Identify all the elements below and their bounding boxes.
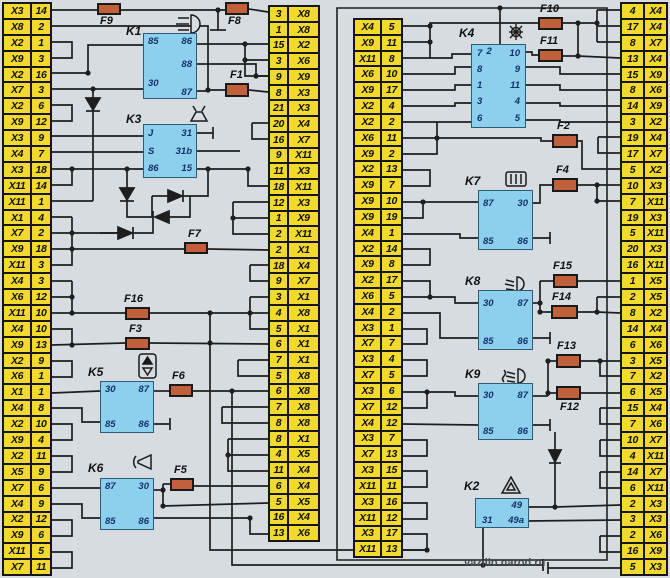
strip-cell: X7: [4, 560, 32, 574]
relay-k9: 30 87 85 86: [478, 383, 533, 440]
strip-cell: 19: [382, 210, 401, 224]
strip-row: X314: [4, 4, 50, 20]
fuse-label: F1: [230, 69, 243, 81]
strip-row: X41: [355, 226, 401, 242]
strip-cell: 5: [622, 226, 645, 240]
relay-fuse-wiring-diagram: X314X82X21X93X216X73X26X912X39X47X318X11…: [0, 0, 670, 578]
strip-row: 16X9: [622, 544, 666, 560]
strip-cell: 3: [32, 52, 50, 66]
strip-cell: X11: [355, 542, 382, 556]
strip-cell: 3: [622, 115, 645, 129]
strip-cell: 16: [32, 68, 50, 82]
strip-cell: 17: [622, 20, 645, 34]
strip-cell: 13: [382, 447, 401, 461]
relay-k6: 87 30 85 86: [100, 478, 154, 530]
strip-row: 13X6: [270, 526, 318, 540]
strip-cell: X9: [355, 36, 382, 50]
strip-cell: X4: [4, 322, 32, 336]
strip-cell: 10: [622, 433, 645, 447]
strip-cell: X9: [355, 147, 382, 161]
strip-row: 11X4: [270, 463, 318, 479]
strip-cell: 2: [32, 20, 50, 34]
strip-cell: X4: [645, 131, 666, 145]
strip-cell: X7: [645, 465, 666, 479]
strip-row: X43: [4, 274, 50, 290]
strip-cell: 3: [270, 54, 289, 68]
strip-cell: 10: [32, 322, 50, 336]
strip-cell: 5: [270, 495, 289, 509]
strip-row: 16X11: [622, 258, 666, 274]
strip-cell: 9: [32, 497, 50, 511]
strip-cell: X3: [355, 321, 382, 335]
strip-cell: 4: [270, 448, 289, 462]
relay-pin: 31: [482, 516, 493, 526]
strip-row: 2X1: [270, 243, 318, 259]
fuse-f15: [553, 274, 578, 288]
strip-cell: X3: [355, 384, 382, 398]
strip-cell: 12: [32, 290, 50, 304]
strip-row: 17X7: [622, 147, 666, 163]
strip-cell: X4: [645, 322, 666, 336]
strip-row: 3X3: [622, 513, 666, 529]
strip-row: X49: [4, 497, 50, 513]
strip-row: 20X3: [622, 242, 666, 258]
strip-row: 13X4: [622, 52, 666, 68]
relay-pin: 8: [477, 65, 482, 75]
strip-row: 15X9: [622, 68, 666, 84]
strip-row: 20X4: [270, 117, 318, 133]
strip-cell: 5: [382, 368, 401, 382]
strip-cell: X11: [4, 179, 32, 193]
strip-cell: 7: [622, 369, 645, 383]
strip-cell: X3: [645, 242, 666, 256]
strip-row: 19X4: [622, 131, 666, 147]
strip-row: 14X7: [622, 465, 666, 481]
fuse-f10: [538, 17, 563, 30]
strip-row: 5X3: [622, 560, 666, 574]
strip-row: X26: [4, 99, 50, 115]
strip-row: 2X5: [622, 290, 666, 306]
relay-pin: 86: [517, 337, 528, 347]
strip-cell: X1: [4, 385, 32, 399]
strip-cell: 8: [622, 83, 645, 97]
fuse-label: F3: [129, 323, 142, 335]
strip-cell: X9: [355, 83, 382, 97]
relay-pin: 87: [181, 88, 192, 98]
strip-cell: 1: [32, 195, 50, 209]
strip-cell: 4: [270, 306, 289, 320]
strip-row: 10X7: [622, 433, 666, 449]
strip-cell: 2: [382, 115, 401, 129]
strip-row: 6X6: [622, 338, 666, 354]
strip-cell: X9: [4, 433, 32, 447]
strip-cell: 2: [622, 290, 645, 304]
relay-pin: 30: [138, 482, 149, 492]
strip-cell: X4: [355, 416, 382, 430]
relay-pin: 87: [138, 385, 149, 395]
strip-row: X913: [4, 338, 50, 354]
strip-row: X22: [355, 115, 401, 131]
relay-pin: 1: [477, 81, 482, 91]
strip-cell: 6: [270, 479, 289, 493]
strip-cell: X4: [4, 497, 32, 511]
strip-cell: 11: [382, 131, 401, 145]
relay-pin: 87: [483, 199, 494, 209]
strip-row: X213: [355, 162, 401, 178]
strip-row: 5X8: [270, 369, 318, 385]
strip-row: 3X6: [270, 54, 318, 70]
strip-cell: X11: [645, 226, 666, 240]
strip-cell: X9: [4, 528, 32, 542]
strip-row: X216: [4, 68, 50, 84]
fuse-f13: [556, 354, 581, 368]
strip-row: 7X11: [622, 195, 666, 211]
strip-row: 12X3: [270, 196, 318, 212]
strip-cell: X4: [645, 4, 666, 18]
strip-row: X97: [355, 178, 401, 194]
fuse-f3: [125, 337, 150, 350]
strip-row: X118: [355, 52, 401, 68]
strip-cell: X3: [289, 164, 318, 178]
relay-label-k7: K7: [465, 174, 480, 188]
strip-cell: X11: [355, 52, 382, 66]
strip-cell: 17: [382, 527, 401, 541]
strip-cell: X9: [355, 210, 382, 224]
strip-cell: 2: [622, 497, 645, 511]
relay-k1: 85 86 88 30 87: [143, 33, 197, 99]
strip-cell: X4: [355, 20, 382, 34]
strip-row: 1X5: [622, 274, 666, 290]
strip-cell: 18: [32, 242, 50, 256]
strip-cell: 10: [32, 306, 50, 320]
fuse-label: F16: [124, 293, 143, 305]
strip-row: 4X4: [622, 4, 666, 20]
relay-pin: 86: [181, 37, 192, 47]
strip-cell: X11: [645, 195, 666, 209]
window-lift-icon: [139, 354, 156, 378]
strip-row: X911: [355, 36, 401, 52]
strip-cell: X9: [355, 178, 382, 192]
relay-pin: 85: [483, 427, 494, 437]
hazard-triangle-icon: [502, 477, 520, 493]
strip-row: X21: [4, 36, 50, 52]
strip-row: 4X8: [270, 306, 318, 322]
strip-cell: 14: [622, 465, 645, 479]
strip-cell: X3: [645, 497, 666, 511]
strip-cell: X9: [4, 338, 32, 352]
relay-pin: 49: [511, 501, 522, 511]
strip-row: X1114: [4, 179, 50, 195]
strip-cell: 14: [622, 99, 645, 113]
strip-cell: X9: [355, 194, 382, 208]
strip-cell: 12: [382, 400, 401, 414]
strip-row: X14: [4, 211, 50, 227]
strip-cell: 8: [32, 401, 50, 415]
strip-cell: X4: [355, 226, 382, 240]
strip-cell: 2: [382, 305, 401, 319]
relay-pin: 31: [170, 128, 192, 139]
relay-pin: 30: [105, 385, 116, 395]
strip-row: 14X4: [622, 322, 666, 338]
strip-row: 2X3: [622, 497, 666, 513]
strip-cell: 13: [382, 542, 401, 556]
strip-cell: X3: [289, 86, 318, 100]
strip-row: 9X7: [270, 274, 318, 290]
strip-row: X65: [355, 289, 401, 305]
strip-row: X82: [4, 20, 50, 36]
strip-cell: 3: [622, 513, 645, 527]
connector-strip-right: 4X417X48X713X415X98X614X93X219X417X75X21…: [620, 2, 668, 576]
strip-cell: X2: [355, 99, 382, 113]
relay-pin: 86: [148, 163, 170, 174]
strip-cell: 15: [622, 401, 645, 415]
relay-pin: 49a: [508, 516, 524, 526]
strip-row: 6X1: [270, 337, 318, 353]
relay-pin: 85: [105, 517, 116, 527]
strip-row: X918: [4, 242, 50, 258]
strip-cell: 3: [270, 290, 289, 304]
strip-row: 10X3: [622, 179, 666, 195]
strip-cell: X1: [289, 290, 318, 304]
strip-cell: 16: [270, 511, 289, 525]
strip-row: X47: [4, 147, 50, 163]
strip-cell: X1: [289, 432, 318, 446]
strip-cell: X11: [645, 449, 666, 463]
strip-row: X1112: [355, 511, 401, 527]
strip-row: 8X8: [270, 416, 318, 432]
strip-cell: X9: [355, 257, 382, 271]
fog-light-icon: [503, 369, 526, 383]
strip-cell: X11: [289, 227, 318, 241]
strip-row: 6X5: [622, 385, 666, 401]
strip-cell: 7: [622, 417, 645, 431]
strip-row: X76: [4, 481, 50, 497]
relay-label-k5: K5: [88, 365, 103, 379]
strip-cell: X4: [289, 463, 318, 477]
relay-pin: 9: [509, 65, 520, 75]
strip-row: X36: [355, 384, 401, 400]
strip-cell: 8: [622, 306, 645, 320]
fuse-f16: [125, 307, 150, 320]
strip-row: X1111: [355, 479, 401, 495]
strip-cell: X2: [645, 163, 666, 177]
strip-cell: 5: [382, 20, 401, 34]
diode-icon: [118, 227, 132, 239]
strip-cell: X4: [645, 52, 666, 66]
rear-defogger-icon: [506, 172, 526, 186]
strip-cell: X1: [4, 211, 32, 225]
strip-cell: X1: [289, 353, 318, 367]
strip-cell: X7: [4, 226, 32, 240]
strip-cell: X2: [645, 369, 666, 383]
horn-icon: [134, 455, 151, 469]
strip-row: 7X8: [270, 400, 318, 416]
strip-row: X73: [4, 83, 50, 99]
strip-row: 7X6: [622, 417, 666, 433]
relay-label-k3: K3: [126, 112, 141, 126]
strip-row: X37: [355, 432, 401, 448]
relay-k5: 30 87 85 86: [100, 381, 154, 433]
strip-cell: X7: [289, 274, 318, 288]
strip-cell: 2: [270, 227, 289, 241]
strip-cell: 10: [382, 67, 401, 81]
strip-cell: 1: [622, 274, 645, 288]
strip-cell: 6: [270, 337, 289, 351]
strip-cell: X3: [355, 352, 382, 366]
diode-icon: [86, 98, 100, 110]
strip-cell: 6: [32, 99, 50, 113]
strip-cell: X9: [289, 212, 318, 226]
strip-cell: 14: [32, 179, 50, 193]
strip-cell: 4: [382, 352, 401, 366]
high-beam-icon: [176, 15, 200, 33]
strip-cell: X11: [645, 481, 666, 495]
strip-cell: X2: [4, 417, 32, 431]
strip-cell: X7: [355, 337, 382, 351]
relay-pin: 10: [509, 49, 520, 59]
relay-pin: 88: [181, 60, 192, 70]
strip-row: X212: [4, 513, 50, 529]
strip-cell: 6: [32, 481, 50, 495]
relay-pin: 85: [105, 420, 116, 430]
strip-row: X315: [355, 463, 401, 479]
strip-row: 21X3: [270, 101, 318, 117]
strip-row: X412: [355, 416, 401, 432]
relay-pin: 86: [517, 237, 528, 247]
strip-cell: X1: [289, 322, 318, 336]
strip-cell: 20: [622, 242, 645, 256]
strip-cell: X2: [4, 36, 32, 50]
strip-row: 18X4: [270, 259, 318, 275]
strip-cell: X3: [645, 211, 666, 225]
strip-cell: X6: [4, 369, 32, 383]
strip-cell: X2: [4, 99, 32, 113]
strip-cell: X3: [4, 163, 32, 177]
strip-cell: X8: [4, 20, 32, 34]
relay-pin: J: [148, 128, 170, 139]
fuse-label: F7: [188, 228, 201, 240]
strip-row: X318: [4, 163, 50, 179]
strip-row: X29: [4, 354, 50, 370]
strip-cell: X2: [355, 242, 382, 256]
strip-cell: X3: [355, 527, 382, 541]
strip-cell: 12: [32, 115, 50, 129]
watermark: vazillo.narod.ru: [464, 557, 545, 569]
strip-cell: 11: [382, 479, 401, 493]
strip-cell: X9: [4, 52, 32, 66]
strip-cell: X4: [645, 401, 666, 415]
strip-cell: X6: [645, 338, 666, 352]
strip-cell: 1: [32, 36, 50, 50]
strip-row: X39: [4, 131, 50, 147]
fuse-label: F8: [228, 15, 241, 27]
fuse-label: F4: [556, 164, 569, 176]
strip-cell: X4: [355, 305, 382, 319]
fuse-f4: [552, 178, 578, 192]
strip-cell: 11: [270, 463, 289, 477]
strip-cell: 4: [622, 4, 645, 18]
strip-row: 3X1: [270, 290, 318, 306]
strip-cell: 4: [32, 211, 50, 225]
low-beam-icon: [505, 277, 524, 291]
strip-row: X61: [4, 369, 50, 385]
strip-cell: X5: [289, 495, 318, 509]
strip-row: 16X4: [270, 511, 318, 527]
strip-cell: 15: [382, 463, 401, 477]
strip-row: X42: [355, 305, 401, 321]
relay-pin: 30: [148, 79, 159, 89]
relay-pin: 4: [509, 97, 520, 107]
strip-row: X217: [355, 273, 401, 289]
strip-cell: 2: [32, 226, 50, 240]
connector-strip-left: X314X82X21X93X216X73X26X912X39X47X318X11…: [2, 2, 52, 576]
strip-cell: 11: [32, 560, 50, 574]
washer-icon: [191, 106, 207, 121]
strip-row: X1110: [4, 306, 50, 322]
strip-row: 3X8: [270, 7, 318, 23]
strip-row: 8X1: [270, 432, 318, 448]
strip-cell: X5: [289, 448, 318, 462]
fuse-label: F2: [557, 120, 570, 132]
strip-row: X75: [355, 368, 401, 384]
strip-cell: X8: [289, 369, 318, 383]
strip-row: 6X8: [270, 385, 318, 401]
strip-cell: X2: [4, 354, 32, 368]
strip-cell: 3: [622, 354, 645, 368]
strip-row: 8X7: [622, 36, 666, 52]
strip-cell: 13: [622, 52, 645, 66]
strip-cell: 5: [270, 322, 289, 336]
strip-row: 3X5: [622, 354, 666, 370]
strip-cell: 1: [32, 369, 50, 383]
fuse-label: F9: [100, 15, 113, 27]
strip-cell: X5: [645, 274, 666, 288]
strip-cell: 8: [270, 432, 289, 446]
fuse-label: F15: [553, 260, 572, 272]
strip-row: X919: [355, 210, 401, 226]
fuse-f8: [225, 2, 249, 15]
strip-row: X912: [4, 115, 50, 131]
strip-cell: 8: [382, 257, 401, 271]
bulb-icon: [509, 24, 523, 40]
strip-cell: X7: [289, 133, 318, 147]
strip-cell: 4: [382, 99, 401, 113]
diode-icon: [168, 190, 182, 202]
fuse-label: F13: [557, 340, 576, 352]
strip-cell: 12: [382, 416, 401, 430]
strip-cell: 5: [622, 560, 645, 574]
relay-label-k2: K2: [464, 479, 479, 493]
strip-cell: X11: [4, 544, 32, 558]
strip-cell: 12: [32, 513, 50, 527]
strip-cell: 18: [270, 180, 289, 194]
fuse-f9: [97, 3, 121, 15]
strip-cell: X7: [355, 447, 382, 461]
strip-row: X712: [355, 400, 401, 416]
strip-cell: 16: [622, 544, 645, 558]
strip-row: X96: [4, 528, 50, 544]
strip-cell: 7: [382, 178, 401, 192]
strip-cell: 7: [270, 353, 289, 367]
strip-cell: X3: [355, 495, 382, 509]
strip-row: 7X2: [622, 369, 666, 385]
strip-cell: 14: [622, 322, 645, 336]
strip-cell: 14: [382, 242, 401, 256]
strip-cell: 6: [270, 385, 289, 399]
strip-cell: X2: [645, 306, 666, 320]
strip-cell: X4: [289, 117, 318, 131]
strip-row: X910: [355, 194, 401, 210]
